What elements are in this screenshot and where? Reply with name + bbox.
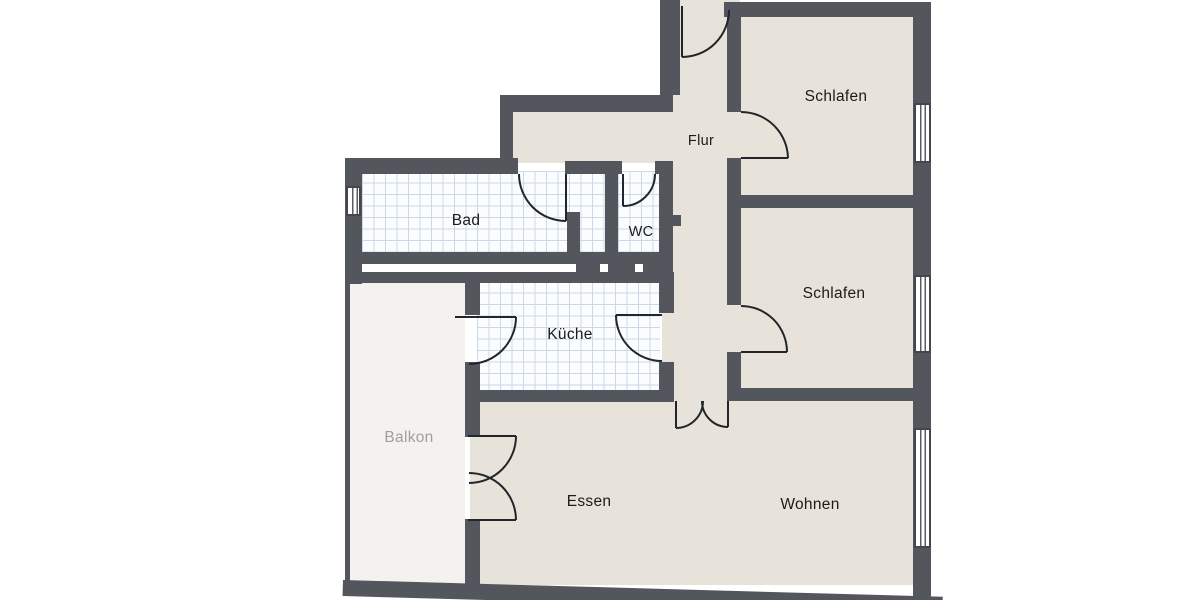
room-label-schlafen-top: Schlafen	[805, 88, 868, 106]
room-label-wc: WC	[629, 224, 654, 240]
wc-door-arc	[623, 174, 655, 206]
room-label-bad: Bad	[452, 212, 480, 230]
room-label-schlafen-mid: Schlafen	[803, 285, 866, 303]
schlafen-top-door-arc	[741, 112, 788, 158]
schlafen-mid-door-arc	[741, 306, 787, 352]
balkon-door-bottom-arc	[469, 473, 516, 520]
room-label-kueche: Küche	[547, 326, 592, 344]
kueche-balkon-door-arc	[469, 317, 516, 364]
room-label-flur: Flur	[688, 133, 714, 149]
flur-swing-door-left-arc	[676, 401, 703, 428]
flur-swing-door-right-arc	[702, 401, 728, 427]
room-label-wohnen: Wohnen	[780, 496, 839, 514]
floor-plan: Schlafen Flur Bad WC Schlafen Küche Balk…	[0, 0, 1200, 600]
entrance-door-arc	[682, 10, 729, 57]
room-label-balkon: Balkon	[384, 429, 433, 447]
room-label-essen: Essen	[567, 493, 612, 511]
bad-door-arc	[519, 174, 566, 221]
balkon-door-top-arc	[469, 436, 516, 483]
kueche-flur-door-arc	[616, 315, 662, 361]
